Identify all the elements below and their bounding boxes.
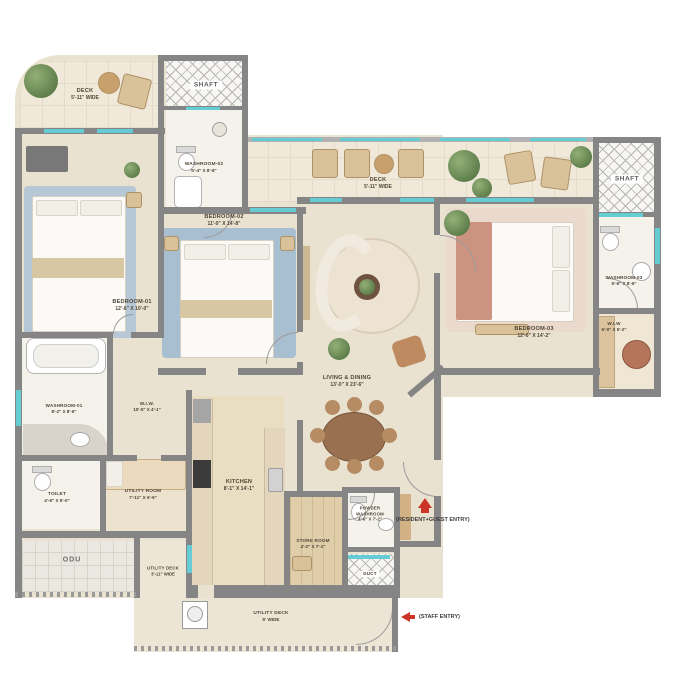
wall [297, 197, 599, 204]
room-label-duct: DUCT [361, 571, 379, 577]
dining-chair [347, 397, 362, 412]
wall [593, 308, 660, 314]
window [310, 198, 342, 202]
railing-glass [530, 138, 586, 141]
staff-entry-label: (STAFF ENTRY) [419, 614, 460, 620]
plant [570, 146, 592, 168]
window [466, 198, 534, 202]
deck-chair [398, 149, 424, 178]
dining-chair [369, 400, 384, 415]
cooktop [193, 460, 211, 488]
room-label-washroom-2: WASHROOM-025'-4" X 8'-8" [185, 162, 223, 174]
dining-table [322, 412, 386, 462]
wall [160, 55, 248, 61]
wall [15, 455, 137, 461]
room-label-deck-2: DECK5'-11" WIDE [364, 177, 392, 191]
window [400, 198, 434, 202]
wall [15, 128, 165, 134]
wall [434, 368, 600, 375]
room-label-toilet: TOILET4'-6" X 5'-0" [44, 492, 69, 504]
wall [342, 487, 348, 598]
resident-entry-arrow-icon [418, 498, 432, 508]
room-label-shaft-1: SHAFT [190, 73, 222, 94]
resident-entry-label: (RESIDENT+GUEST ENTRY) [396, 517, 470, 523]
bed-runner [32, 258, 124, 278]
wall [238, 368, 303, 375]
storage-box [292, 556, 312, 571]
room-label-wiw-2: W.I.W6'-0" X 5'-2" [602, 321, 627, 333]
plant [444, 210, 470, 236]
room-label-living: LIVING & DINING13'-0" X 23'-6" [323, 375, 371, 389]
toilet-wc [600, 226, 620, 252]
deck-chair [344, 149, 370, 178]
room-label-powder: POWDER WASHROOM4'-6" X 7'-2" [350, 506, 390, 523]
nightstand [164, 236, 179, 251]
toilet-wc [32, 466, 52, 492]
wall [186, 585, 198, 598]
deck-table [374, 154, 394, 174]
pillow [36, 200, 78, 216]
wall [342, 547, 398, 552]
floor-plan: DECK5'-11" WIDE SHAFT WASHROOM-025'-4" X… [0, 0, 700, 700]
wall [593, 137, 599, 217]
window [655, 228, 660, 264]
wall [15, 531, 192, 538]
wall [434, 368, 441, 460]
wall [297, 207, 303, 332]
room-label-washroom-3: WASHROOM-035'-6" X 8'-6" [606, 275, 643, 287]
bed-blanket [456, 222, 492, 320]
wall [342, 487, 398, 493]
window [16, 390, 21, 426]
vanity-counter [23, 424, 109, 455]
deck-chair [312, 149, 338, 178]
room-label-odu: ODU [63, 555, 82, 564]
bed-runner [180, 300, 272, 318]
fridge [193, 399, 211, 423]
dining-chair [369, 456, 384, 471]
wall [15, 128, 22, 598]
wall [214, 585, 398, 598]
railing-glass [340, 138, 420, 141]
room-label-utility-deck-1: UTILITY DECK3'-11" WIDE [147, 565, 179, 576]
room-label-bedroom-3: BEDROOM-0312'-0" X 14'-2" [514, 326, 553, 340]
room-odu [22, 541, 134, 592]
wall [297, 420, 303, 497]
plant [448, 150, 480, 182]
desk [26, 146, 68, 172]
deck-chair [540, 156, 572, 191]
pillow [552, 270, 570, 312]
pillow [228, 244, 270, 260]
plant [359, 279, 375, 295]
window [97, 129, 133, 133]
dining-chair [325, 456, 340, 471]
kitchen-counter [264, 428, 285, 585]
kitchen-counter [192, 398, 213, 585]
wall [242, 55, 248, 212]
dining-chair [347, 459, 362, 474]
plant [24, 64, 58, 98]
wall [284, 491, 290, 591]
plant [124, 162, 140, 178]
deck-chair [504, 150, 537, 185]
pillow [552, 226, 570, 268]
wall [297, 362, 303, 375]
window [348, 555, 390, 559]
shower-head [212, 122, 227, 137]
window [44, 129, 84, 133]
room-label-washroom-1: WASHROOM-018'-2" X 8'-6" [46, 403, 83, 415]
room-label-shaft-2: SHAFT [611, 167, 643, 188]
wall [107, 332, 113, 461]
window [599, 213, 643, 217]
dining-chair [325, 400, 340, 415]
washer-drum [187, 606, 203, 622]
wall [593, 389, 661, 397]
bathtub-inner [33, 344, 99, 368]
wall [131, 332, 164, 338]
dining-chair [382, 428, 397, 443]
deck-edge-dotted [134, 646, 398, 651]
wall [392, 598, 398, 652]
room-label-store: STORE ROOM4'-2" X 7'-1" [296, 538, 329, 550]
wall [15, 332, 113, 338]
room-label-kitchen: KITCHEN8'-1" X 14'-1" [224, 479, 254, 493]
room-label-utility-deck-2: UTILITY DECK5' WIDE [253, 611, 288, 623]
media-console [303, 246, 310, 320]
wall [593, 212, 599, 395]
pillow [80, 200, 122, 216]
deck-table [98, 72, 120, 94]
staff-entry-arrow-icon [401, 612, 410, 622]
room-label-bedroom-2: BEDROOM-0211'-0" X 14'-8" [204, 214, 243, 228]
wall [593, 137, 661, 143]
wall [284, 491, 344, 497]
staff-entry-arrow-stem [410, 615, 415, 619]
deck-edge-dotted [15, 592, 136, 597]
room-label-deck-1: DECK5'-11" WIDE [71, 88, 99, 102]
railing-glass [440, 138, 510, 141]
sink [268, 468, 283, 492]
wiw-chair [622, 340, 651, 369]
room-label-wiw-1: W.I.W.10'-5" X 4'-1" [133, 401, 160, 413]
room-label-bedroom-1: BEDROOM-0112'-6" X 10'-0" [112, 299, 151, 313]
wall [434, 273, 440, 372]
sink [70, 432, 90, 447]
bathtub [174, 176, 202, 208]
railing-glass [252, 138, 322, 141]
pillow [184, 244, 226, 260]
nightstand [126, 192, 142, 208]
wall [158, 368, 206, 375]
wall [158, 212, 164, 338]
dining-chair [310, 428, 325, 443]
window [186, 107, 220, 110]
room-label-utility: UTILITY ROOM7'-11" X 6'-6" [125, 489, 162, 501]
resident-entry-arrow-stem [421, 508, 429, 513]
window [250, 208, 296, 212]
plant [328, 338, 350, 360]
pillow [106, 461, 123, 487]
window [187, 545, 192, 573]
nightstand [280, 236, 295, 251]
wall [134, 531, 140, 598]
wall [100, 461, 106, 531]
plant [472, 178, 492, 198]
wall [654, 137, 661, 397]
